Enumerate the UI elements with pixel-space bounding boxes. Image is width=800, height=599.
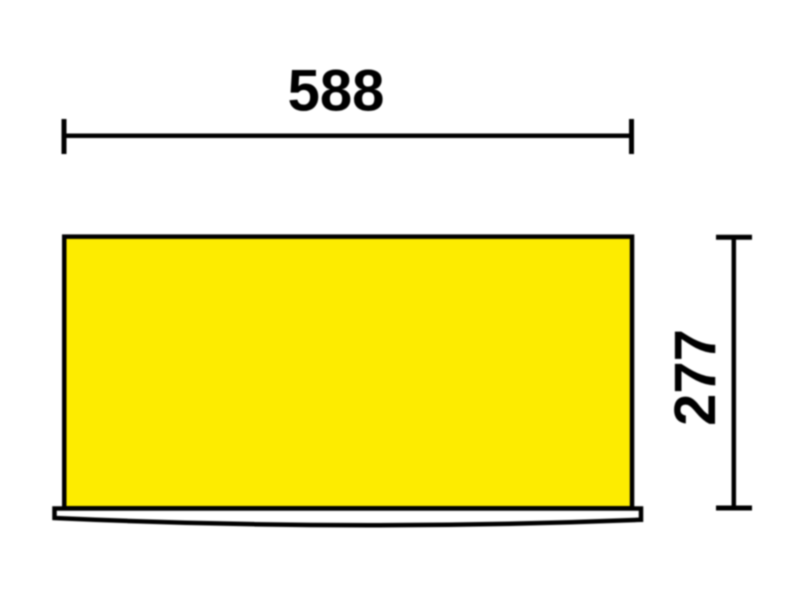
svg-text:588: 588 (288, 59, 385, 124)
svg-text:277: 277 (663, 329, 728, 426)
